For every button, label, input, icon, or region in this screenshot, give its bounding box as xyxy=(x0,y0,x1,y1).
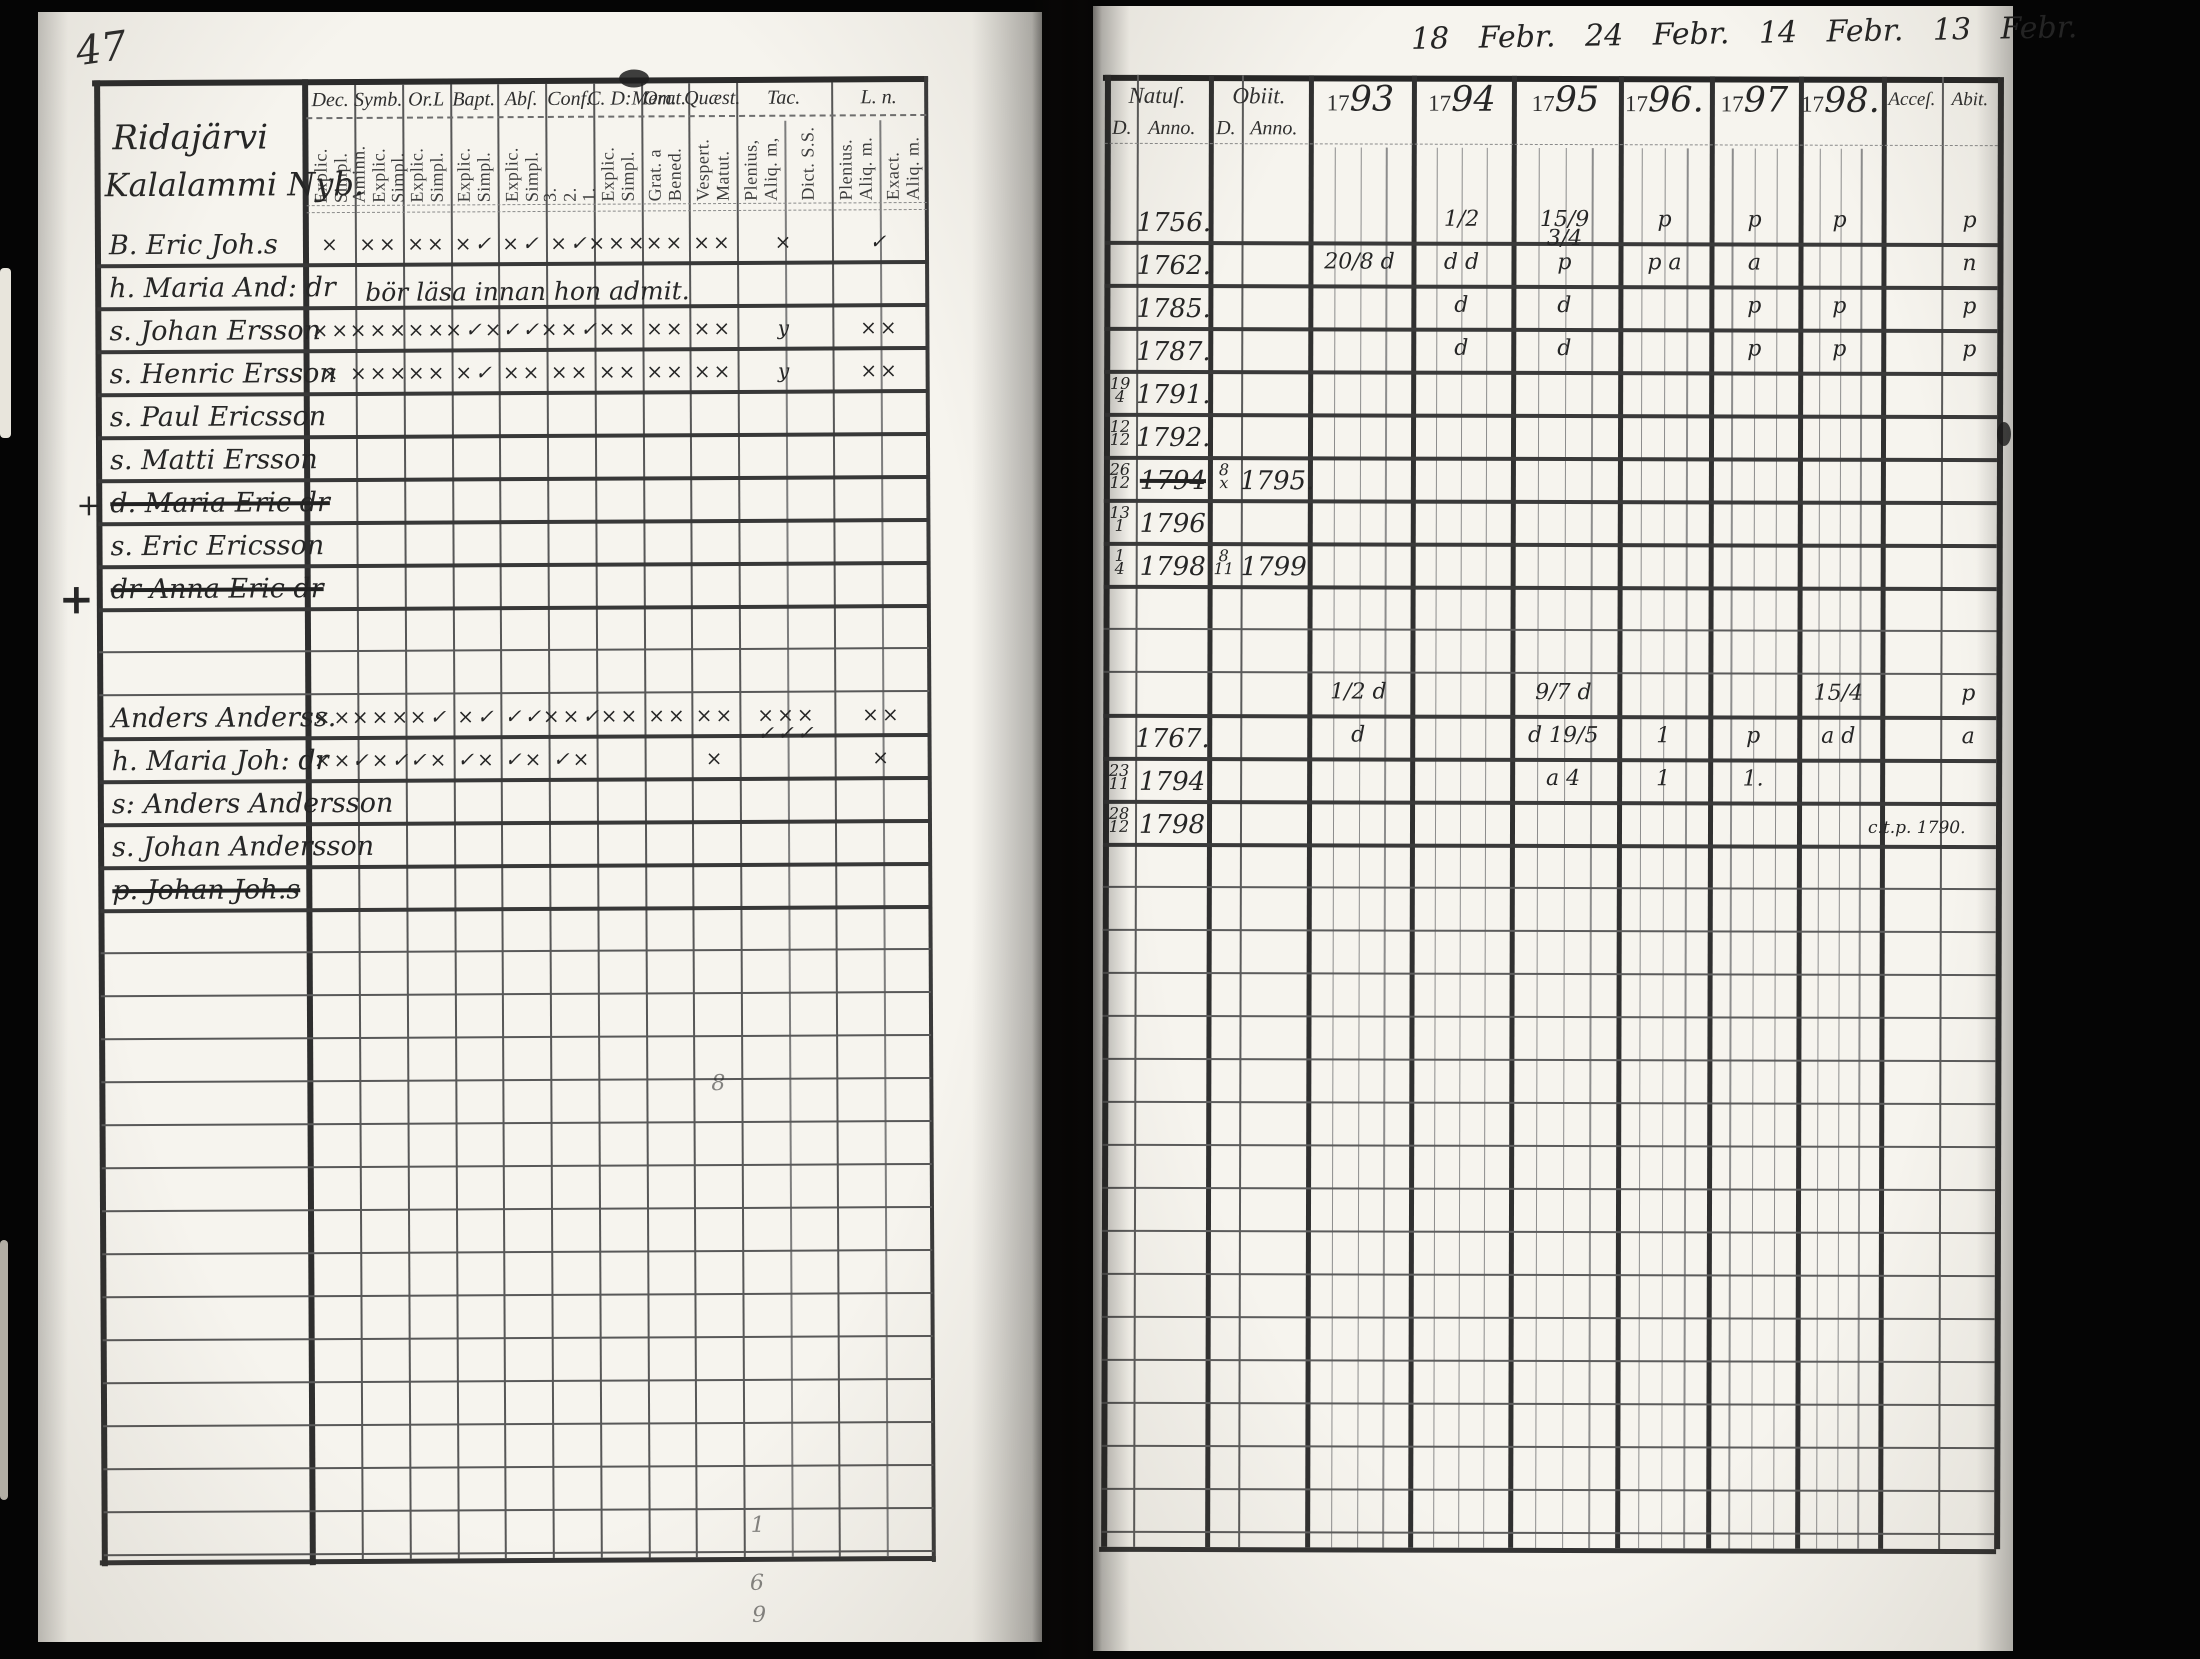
obiit-day: 8 11 xyxy=(1206,550,1242,576)
communion-mark: a d xyxy=(1793,728,1883,747)
year-header: 1794 xyxy=(1412,80,1512,120)
year-printed-prefix: 17 xyxy=(1721,91,1744,116)
communion-mark: d xyxy=(1519,297,1609,316)
row-line xyxy=(100,862,930,870)
scanned-parish-register-spread: 47 Dec.Explic.Simpl.Symb.Aminn.Explic.Si… xyxy=(0,0,2200,1659)
person-name: s. Johan Andersson xyxy=(112,831,374,863)
person-name: s. Eric Ericsson xyxy=(110,530,324,562)
communion-mark: 9/7 d xyxy=(1518,684,1608,703)
row-line xyxy=(1103,972,1996,976)
year-script-digits: 93 xyxy=(1350,79,1395,119)
natus-day: 28 12 xyxy=(1101,808,1137,834)
row-line xyxy=(100,776,930,784)
year-script-digits: 96. xyxy=(1648,80,1704,120)
column-subheader-label: Simpl. xyxy=(522,124,541,202)
row-line xyxy=(103,1421,933,1427)
row-line xyxy=(1102,1144,1995,1148)
communion-mark: d xyxy=(1313,726,1403,745)
column-subheader-group: Plenius,Aliq. m, xyxy=(736,123,784,201)
natus-year: 1794 xyxy=(1135,767,1209,797)
column-subheader-label: Explic. xyxy=(454,124,473,202)
column-subheader-group: Explic.Simpl. xyxy=(593,123,641,201)
table-bottom-border xyxy=(1099,1547,1996,1554)
communion-mark: d xyxy=(1416,340,1506,359)
communion-mark: p xyxy=(1795,212,1885,231)
header-dashed-line xyxy=(1105,143,1998,146)
communion-mark: n xyxy=(1924,255,2014,274)
communion-mark: d 19/5 xyxy=(1518,727,1608,746)
register-right-page: 18 Febr. 24 Febr. 14 Febr. 13 Febr. Natu… xyxy=(1093,6,2013,1651)
communion-mark: 1/2 d xyxy=(1313,683,1403,702)
communion-mark: a xyxy=(1709,254,1799,273)
natus-year: 1792. xyxy=(1136,423,1210,453)
communion-mark: 1 xyxy=(1618,727,1708,746)
stray-pencil-figure: 8 xyxy=(711,1071,725,1096)
column-subheader-label: Aliq. m. xyxy=(856,122,875,200)
natus-header: Natuſ. xyxy=(1107,83,1207,109)
communion-mark: 15/4 xyxy=(1793,685,1883,704)
margin-cross-mark: + xyxy=(76,488,101,523)
row-line xyxy=(1102,1058,1995,1062)
examination-marks: ×× xyxy=(824,318,935,337)
column-subheader-group: 3.2.1. xyxy=(545,124,593,202)
year-header: 1798. xyxy=(1799,81,1882,121)
year-header: 1797 xyxy=(1710,80,1799,120)
year-header: 1793 xyxy=(1309,79,1412,119)
row-line xyxy=(98,389,928,397)
column-subheader-group: Explic.Simpl. xyxy=(450,124,497,202)
year-printed-prefix: 17 xyxy=(1327,90,1350,115)
row-line xyxy=(99,604,929,612)
person-name: s. Matti Ersson xyxy=(110,444,318,476)
year-script-digits: 94 xyxy=(1451,80,1496,120)
communion-mark: 1/2 xyxy=(1417,211,1507,230)
natus-year: 1762. xyxy=(1136,251,1210,281)
row-line xyxy=(1102,1230,1995,1234)
row-line xyxy=(97,346,927,354)
row-line xyxy=(102,1163,932,1169)
household-heading-line2: Kalalammi Nyb. xyxy=(105,165,365,204)
row-line xyxy=(1101,1488,1994,1492)
communion-mark: 15/9 3/4 xyxy=(1520,211,1610,249)
ink-blotch xyxy=(619,69,649,87)
communion-mark: p xyxy=(1925,212,2015,231)
column-subheader-label: Explic. xyxy=(407,125,426,203)
communion-mark: d xyxy=(1519,340,1609,359)
column-subheader-label: Simpl. xyxy=(427,124,446,202)
row-line xyxy=(102,1249,932,1255)
row-line xyxy=(1103,886,1996,890)
year-header: 1796. xyxy=(1619,80,1710,120)
pastor-note: bör läsa innan hon admit. xyxy=(365,276,690,307)
row-line xyxy=(1101,1531,1994,1535)
column-subheader-label: 2. xyxy=(560,124,579,202)
column-header-ln: L. n. xyxy=(825,86,932,110)
row-line xyxy=(1101,1402,1994,1406)
year-column-border xyxy=(1508,76,1517,1548)
communion-mark: p xyxy=(1923,685,2013,704)
ink-blotch xyxy=(1997,422,2011,446)
column-subheader-label: Grat. a xyxy=(645,123,664,201)
year-column-border xyxy=(1305,75,1314,1547)
row-line xyxy=(97,260,927,268)
row-line xyxy=(102,1292,932,1298)
row-line xyxy=(103,1335,933,1341)
communion-mark: p xyxy=(1924,298,2014,317)
communion-mark: p xyxy=(1710,211,1800,230)
row-line xyxy=(1102,1273,1995,1277)
communion-mark: a 4 xyxy=(1518,770,1608,789)
row-line xyxy=(102,1206,932,1212)
person-name: h. Maria And: dr xyxy=(109,272,336,304)
row-line xyxy=(1103,800,1996,806)
stray-pencil-figure: 9 xyxy=(752,1603,766,1628)
row-line xyxy=(1104,284,1997,290)
examination-marks: ✓ xyxy=(824,232,935,251)
stray-pencil-figure: 6 xyxy=(750,1571,764,1596)
column-subheader-group: Explic.Simpl. xyxy=(402,124,450,202)
row-line xyxy=(1102,1359,1995,1363)
column-subheader-label: Exact. xyxy=(883,122,902,200)
column-subheader-label: Plenius. xyxy=(836,122,855,200)
examination-marks: × xyxy=(827,748,938,767)
communion-mark: p xyxy=(1519,254,1609,273)
row-line xyxy=(1104,327,1997,333)
obiit-day-header: D. xyxy=(1209,117,1243,140)
row-line xyxy=(103,1464,933,1470)
row-line xyxy=(1104,499,1997,505)
row-line xyxy=(98,475,928,483)
column-subheader-group: Explic.Simpl. xyxy=(497,124,545,202)
row-line xyxy=(1103,1015,1996,1019)
row-line xyxy=(1103,843,1996,849)
examination-table: Dec.Explic.Simpl.Symb.Aminn.Explic.Simpl… xyxy=(34,9,1047,1644)
subcolumn-line xyxy=(1238,75,1244,1547)
column-subheader-label: Aliq. m, xyxy=(761,123,780,201)
row-line xyxy=(1104,542,1997,548)
table-top-border xyxy=(92,76,928,86)
natus-year: 1796 xyxy=(1136,509,1210,539)
column-subheader-label: Explic. xyxy=(502,124,521,202)
book-page-edges xyxy=(2012,0,2200,1659)
column-subheader-label: Bened. xyxy=(665,123,684,201)
row-line xyxy=(1102,1101,1995,1105)
column-subheader-group: Plenius.Aliq. m. xyxy=(831,122,879,200)
row-line xyxy=(1102,1316,1995,1320)
communion-mark: 1. xyxy=(1708,770,1798,789)
communion-mark: 20/8 d xyxy=(1314,253,1404,272)
column-subheader-label: Matut. xyxy=(713,123,732,201)
year-printed-prefix: 17 xyxy=(1801,92,1824,117)
register-left-page: 47 Dec.Explic.Simpl.Symb.Aminn.Explic.Si… xyxy=(38,12,1042,1642)
communion-mark: 1 xyxy=(1618,770,1708,789)
natus-year: 1798 xyxy=(1136,552,1210,582)
column-header-tac: Tac. xyxy=(730,86,837,110)
row-line xyxy=(99,561,929,569)
table-bottom-border xyxy=(100,1556,936,1565)
row-line xyxy=(104,1507,934,1513)
natus-day: 12 12 xyxy=(1102,421,1138,447)
row-line xyxy=(99,647,929,653)
natus-year: 1785. xyxy=(1136,294,1210,324)
page-edge-sliver xyxy=(0,1240,8,1500)
examination-marks: ✓× xyxy=(541,750,605,768)
column-subheader-label: Explic. xyxy=(598,124,617,202)
natus-day: 19 4 xyxy=(1102,378,1138,404)
natus-anno-header: Anno. xyxy=(1139,117,1205,140)
column-subheader-group: Vespert.Matut. xyxy=(688,123,736,201)
obiit-day: 8 x xyxy=(1206,464,1242,490)
natus-day: 26 12 xyxy=(1102,464,1138,490)
row-line xyxy=(101,991,931,997)
column-subheader-label: Simpl. xyxy=(474,124,493,202)
natus-day: 1 4 xyxy=(1102,550,1138,576)
row-line xyxy=(102,1120,932,1126)
row-line xyxy=(100,819,930,827)
margin-cross-mark: + xyxy=(59,574,94,623)
natus-day-header: D. xyxy=(1105,117,1139,140)
person-name: h. Maria Joh: dr xyxy=(112,745,329,777)
page-edge-sliver xyxy=(0,268,11,438)
row-line xyxy=(1102,1187,1995,1191)
acces-header: Acceſ. xyxy=(1882,89,1942,111)
obiit-year: 1795. xyxy=(1240,466,1308,496)
year-script-digits: 95 xyxy=(1555,80,1600,120)
row-line xyxy=(101,948,931,954)
examination-marks: × xyxy=(684,749,748,767)
row-line xyxy=(98,432,928,440)
book-binding-gutter xyxy=(1032,0,1102,1659)
stray-pencil-figure: 1 xyxy=(751,1513,765,1538)
row-line xyxy=(99,690,929,696)
communion-mark: p xyxy=(1708,727,1798,746)
examination-marks: ×× xyxy=(825,361,936,380)
person-name: s. Paul Ericsson xyxy=(110,401,327,433)
communion-mark: p xyxy=(1794,341,1884,360)
year-printed-prefix: 17 xyxy=(1532,91,1555,116)
natus-day: 13 1 xyxy=(1102,507,1138,533)
year-column-border xyxy=(1615,76,1624,1548)
natus-year: 1767. xyxy=(1135,724,1209,754)
row-line xyxy=(1103,714,1996,720)
column-subheader-group: Dict. S.S. xyxy=(784,122,831,200)
communion-mark: p xyxy=(1709,297,1799,316)
person-name: p. Johan Joh.s xyxy=(112,874,300,906)
column-subheader-label: Explic. xyxy=(369,125,388,203)
column-subheader-label: Plenius, xyxy=(741,123,760,201)
row-line xyxy=(1104,413,1997,419)
natus-year: 1787. xyxy=(1136,337,1210,367)
natus-day: 23 11 xyxy=(1101,765,1137,791)
obiit-header: Obiit. xyxy=(1211,83,1307,109)
communion-mark: p xyxy=(1924,341,2014,360)
person-name: B. Eric Joh.s xyxy=(109,229,278,261)
column-subheader-label: Dict. S.S. xyxy=(798,123,817,201)
row-line xyxy=(1104,585,1997,591)
person-name: s: Anders Andersson xyxy=(112,788,394,820)
column-subheader-group: Grat. aBened. xyxy=(641,123,688,201)
communion-mark: p xyxy=(1709,340,1799,359)
communion-years-table: Natuſ.Obiit.D.Anno.D.Anno.17931794179517… xyxy=(1091,5,2015,1652)
person-name: s. Johan Ersson xyxy=(109,315,321,347)
person-name: dr Anna Eric dr xyxy=(111,573,324,605)
natus-year: 1791. xyxy=(1136,380,1210,410)
natus-year: 1798 xyxy=(1135,810,1209,840)
column-subheader-group: Exact.Aliq. m. xyxy=(879,122,926,200)
row-line xyxy=(1104,370,1997,376)
communion-mark: a xyxy=(1923,728,2013,747)
row-line xyxy=(1104,628,1997,632)
year-printed-prefix: 17 xyxy=(1625,91,1648,116)
row-line xyxy=(101,1077,931,1083)
year-printed-prefix: 17 xyxy=(1428,91,1451,116)
row-line xyxy=(101,1034,931,1040)
column-subheader-label: Aliq. m. xyxy=(903,122,922,200)
row-line xyxy=(1103,757,1996,763)
communion-mark: p xyxy=(1794,298,1884,317)
obiit-year: 1799 xyxy=(1240,552,1308,582)
natus-year: 1756. xyxy=(1137,208,1211,238)
row-line xyxy=(1103,929,1996,933)
row-line xyxy=(100,905,930,913)
column-subheader-label: Simpl. xyxy=(618,123,637,201)
row-line xyxy=(103,1378,933,1384)
communion-mark: d d xyxy=(1416,254,1506,273)
communion-mark: d xyxy=(1416,297,1506,316)
communion-mark: p a xyxy=(1619,254,1709,273)
row-note: c.t.p. 1790. xyxy=(1868,818,1994,838)
column-subheader-label: Vespert. xyxy=(693,123,712,201)
row-line xyxy=(98,518,928,526)
obiit-anno-header: Anno. xyxy=(1243,117,1305,140)
household-heading-line1: Ridajärvi xyxy=(112,117,268,158)
year-header: 1795 xyxy=(1512,80,1619,120)
row-line xyxy=(1104,456,1997,462)
person-name: d. Maria Eric dr xyxy=(110,487,330,519)
year-script-digits: 98. xyxy=(1824,81,1880,121)
communion-mark: p xyxy=(1620,211,1710,230)
year-script-digits: 97 xyxy=(1744,80,1789,120)
row-line xyxy=(104,1550,934,1556)
column-subheader-label: 3. xyxy=(540,124,559,202)
row-line xyxy=(1103,671,1996,675)
examination-marks: ×× xyxy=(826,705,937,724)
row-line xyxy=(1101,1445,1994,1449)
abit-header: Abit. xyxy=(1942,89,1998,111)
natus-year: 1794 xyxy=(1136,466,1210,496)
